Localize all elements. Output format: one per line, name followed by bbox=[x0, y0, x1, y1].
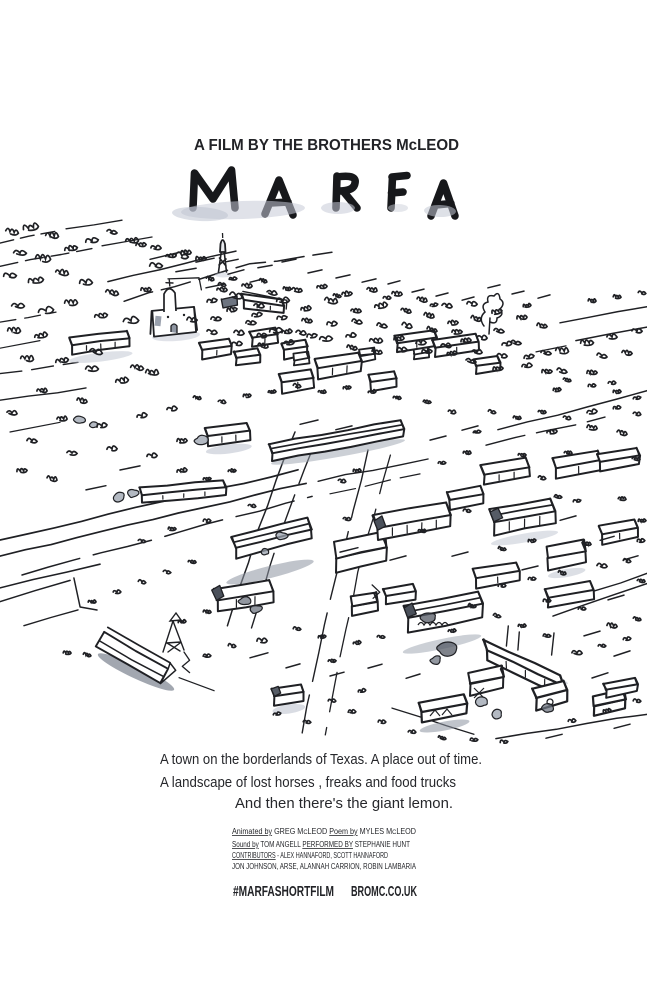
svg-text:#MARFASHORTFILM: #MARFASHORTFILM bbox=[233, 883, 334, 900]
svg-text:A landscape of lost horses , f: A landscape of lost horses , freaks and … bbox=[160, 775, 456, 791]
svg-text:JON JOHNSON, ARSE, ALANNAH CAR: JON JOHNSON, ARSE, ALANNAH CARRION, ROBI… bbox=[232, 862, 417, 871]
svg-text:Animated by GREG MCLEOD Poem: Animated by GREG MCLEOD Poem by MYLES MC… bbox=[232, 827, 416, 836]
svg-text:BROMC.CO.UK: BROMC.CO.UK bbox=[351, 883, 417, 900]
svg-text:Sound by TOM ANGELL PERFORMED: Sound by TOM ANGELL PERFORMED BY STEPHAN… bbox=[232, 840, 410, 849]
svg-text:CONTRIBUTORS - ALEX HANNAFORD,: CONTRIBUTORS - ALEX HANNAFORD, SCOTT HAN… bbox=[232, 851, 388, 860]
svg-text:A FILM BY THE BROTHERS McLEOD: A FILM BY THE BROTHERS McLEOD bbox=[194, 137, 459, 154]
svg-text:And then there's the giant lem: And then there's the giant lemon. bbox=[235, 796, 453, 812]
svg-text:A town on the borderlands of T: A town on the borderlands of Texas. A pl… bbox=[160, 752, 482, 768]
